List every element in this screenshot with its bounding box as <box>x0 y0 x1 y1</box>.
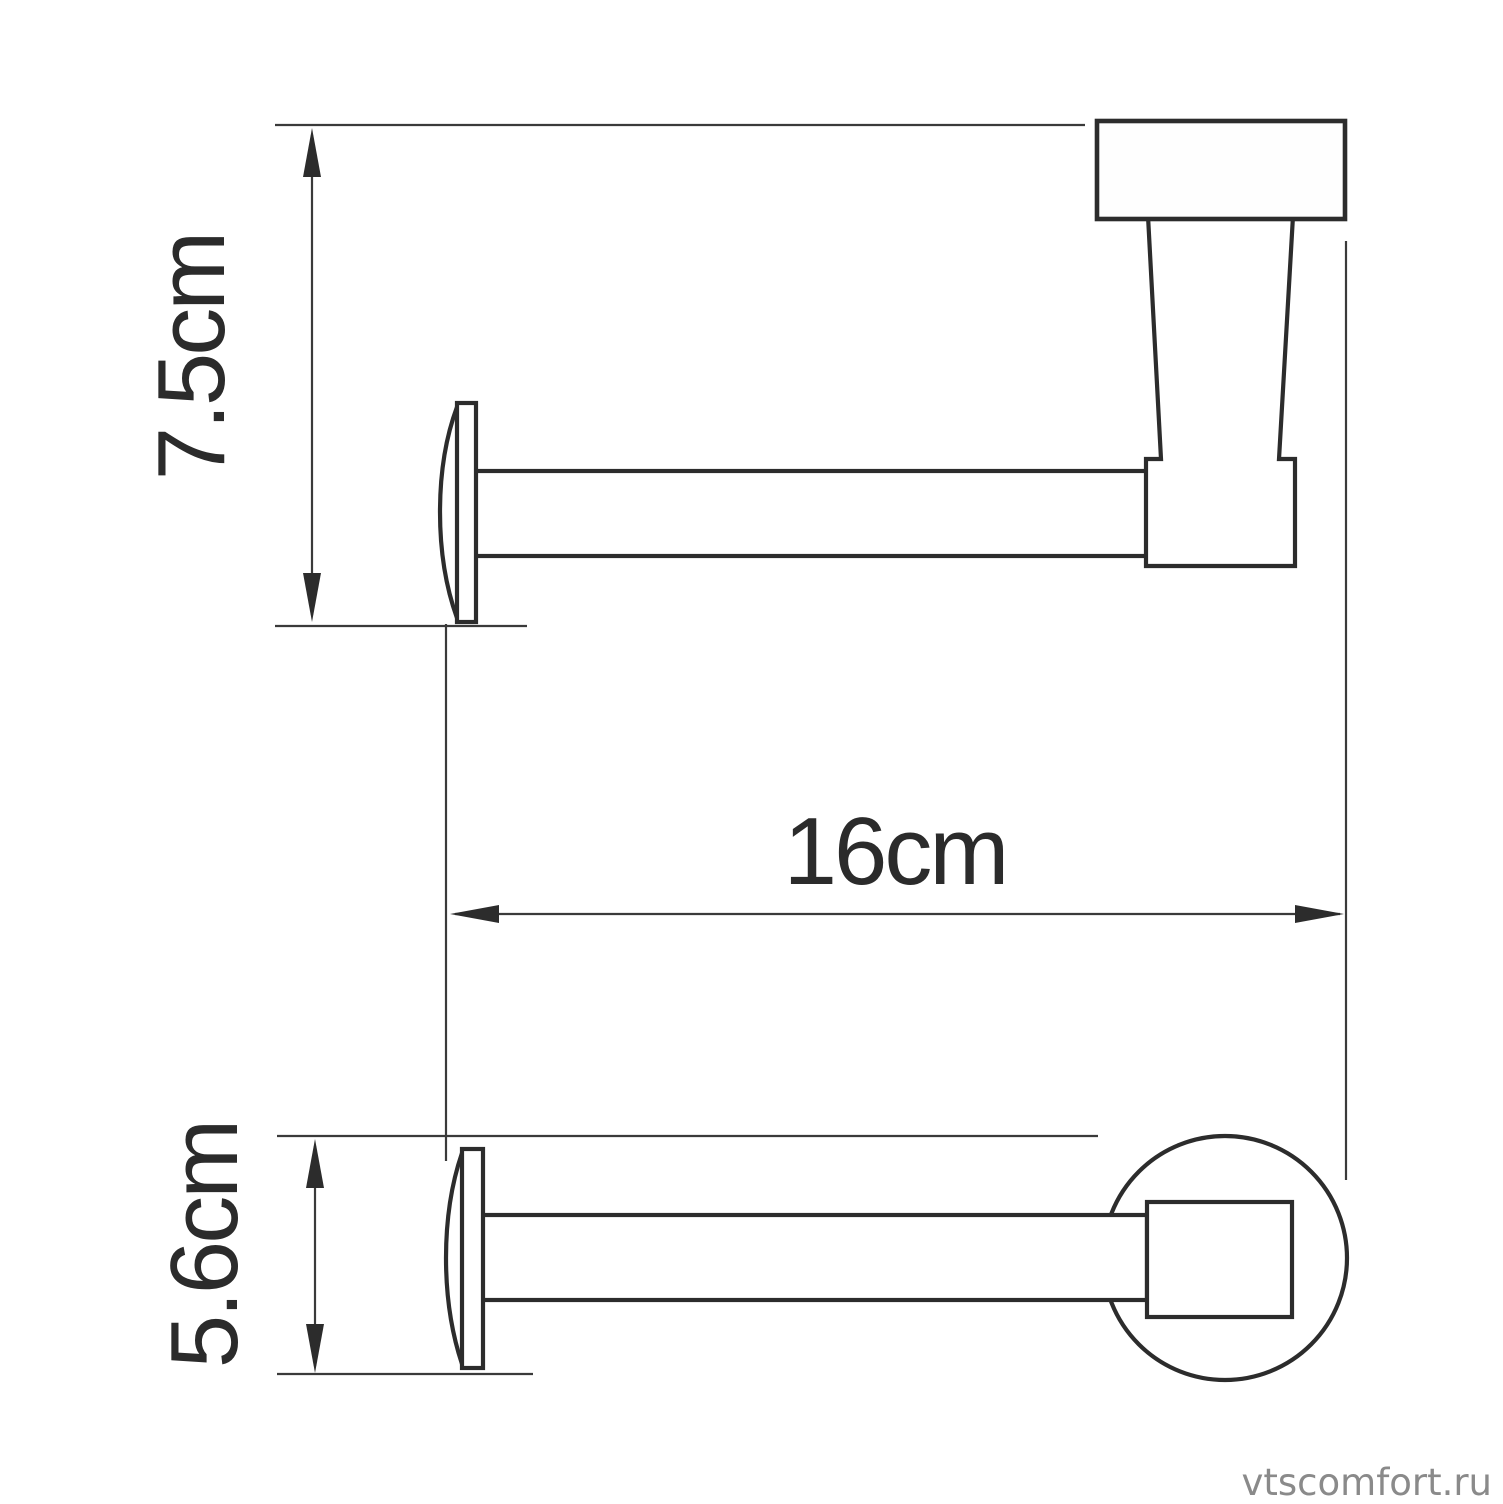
drawing-canvas: 7.5cm 16cm 5.6cm vtscomfort.ru <box>0 0 1503 1504</box>
arrow-down-icon <box>303 573 321 622</box>
mount-boss-square <box>1147 1202 1292 1317</box>
plan-view <box>446 1136 1347 1380</box>
wall-plate <box>1097 121 1345 219</box>
end-cap-dome-side <box>440 407 457 618</box>
arrow-left-icon <box>450 905 499 923</box>
end-cap-side <box>457 403 476 622</box>
arrow-down-icon <box>306 1324 324 1373</box>
arrow-up-icon <box>303 128 321 177</box>
arrow-right-icon <box>1295 905 1344 923</box>
depth-dimension-label: 5.6cm <box>151 1122 258 1368</box>
watermark-text: vtscomfort.ru <box>1241 1461 1492 1504</box>
length-dimension-label: 16cm <box>784 798 1007 905</box>
side-view <box>440 121 1345 622</box>
end-cap-plan <box>462 1149 483 1368</box>
roll-bar-side <box>470 471 1150 556</box>
arrow-up-icon <box>306 1139 324 1188</box>
mounting-stem-and-block <box>1146 216 1295 566</box>
roll-bar-plan <box>479 1215 1147 1300</box>
end-cap-dome-plan <box>446 1153 462 1364</box>
height-dimension-label: 7.5cm <box>138 234 245 480</box>
